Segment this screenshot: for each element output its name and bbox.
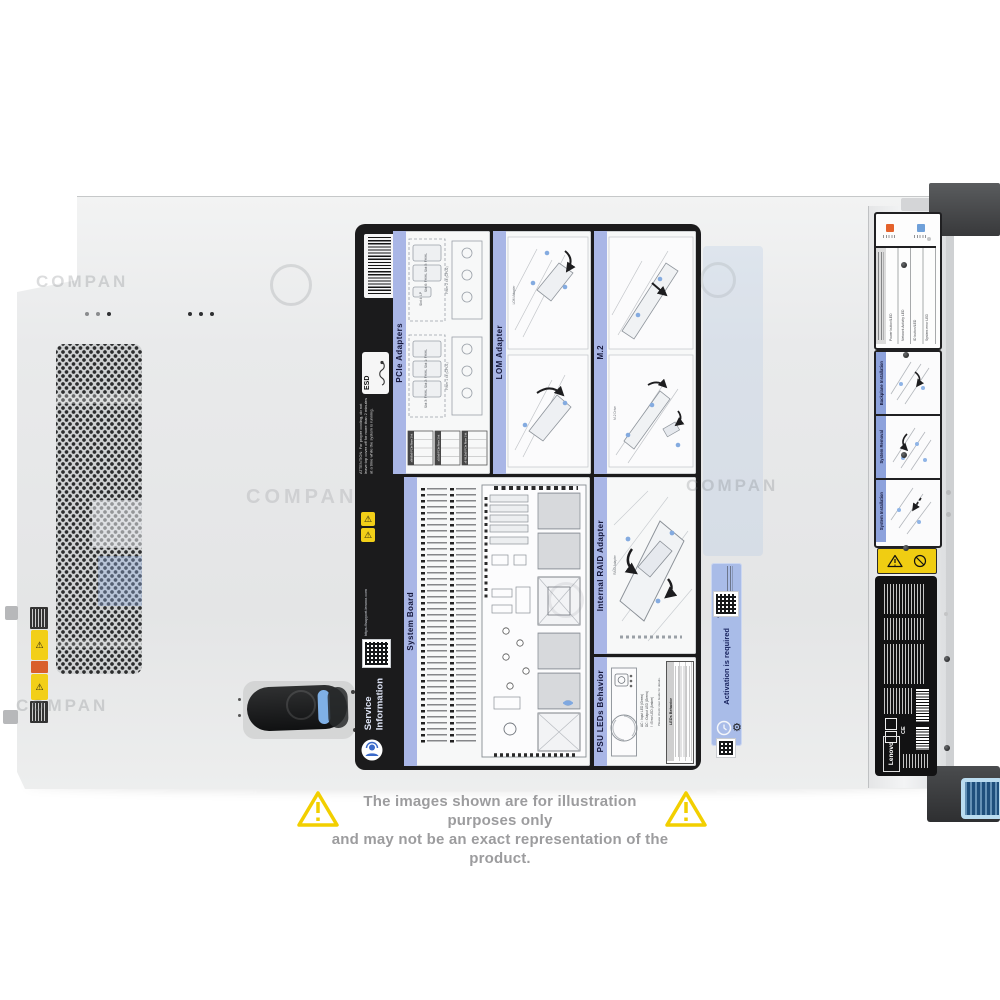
reg-text-block: [884, 618, 924, 640]
screw: [903, 352, 909, 358]
rivet: [210, 312, 214, 316]
vent-highlight: [56, 394, 142, 404]
screw: [944, 745, 950, 751]
section-title-bar: System Removal: [876, 416, 886, 478]
slot-label: Slot 4: LP: [419, 292, 423, 306]
watermark-ring: [286, 690, 316, 720]
wrist-strap-icon: [377, 360, 387, 386]
clock-icon: [716, 720, 732, 736]
no-touch-icon: [913, 554, 927, 568]
lenovo-logo-box: Lenovo: [883, 736, 900, 772]
riser-table-header: x16/x8 PCIe Riser 1 kit: [436, 435, 440, 462]
mini-orange-label: [31, 661, 48, 673]
slot-label: Slot 3: FH/HL: [424, 389, 428, 408]
rail-tab: [901, 198, 931, 211]
handle-cap: [327, 687, 348, 729]
power-button-icon: [886, 224, 894, 232]
reg-text-block: [903, 754, 929, 768]
watermark-ring: [270, 264, 312, 306]
raid-diagram: RAID Adapter: [608, 481, 694, 650]
legend-text-lines: [427, 488, 447, 746]
legend-line: ! : Error LED (Amber): [650, 661, 654, 727]
power-off-warning-icon: ⚠: [361, 512, 375, 526]
slot-label: Slot 2: FH/HL: [424, 369, 428, 388]
section-diagram: [887, 482, 935, 538]
panel-title-m2: M.2: [596, 345, 605, 360]
hot-surface-warning-icon: ⚠: [361, 528, 375, 542]
pin-hole: [946, 512, 951, 517]
pin-hole: [946, 490, 951, 495]
serial-barcode: [364, 234, 395, 298]
riser-table-header: x8/x8/x8 PCIe Riser 1 kit: [409, 434, 413, 463]
panel-title-system-board: System Board: [406, 592, 415, 651]
attention-note-wrap: ATTENTION: For proper cooling, do not le…: [358, 398, 376, 474]
rivet: [96, 312, 100, 316]
legend-markers: [450, 488, 454, 746]
screw: [903, 545, 909, 551]
activation-title-wrap: Activation is required: [711, 618, 742, 714]
disclaimer-line1: The images shown are for illustration pu…: [330, 792, 670, 830]
reg-text-block: [884, 688, 912, 714]
table-text: [675, 666, 692, 757]
section-diagram: [887, 354, 935, 410]
panel-title-raid: Internal RAID Adapter: [596, 520, 605, 611]
panel-title-psu: PSU LEDs Behavior: [596, 670, 605, 752]
panel-title-bar: PCIe Adapters: [393, 231, 406, 474]
tiny-caption: [914, 235, 928, 238]
disclaimer-line2: and may not be an exact representation o…: [330, 830, 670, 868]
m2-callout: M.2 Drive: [613, 406, 617, 420]
mini-spec-label: [30, 607, 48, 629]
edge-tab: [5, 606, 18, 620]
watermark-ring: [700, 262, 736, 298]
lom-diagram: LOM Adapter: [507, 235, 589, 470]
ce-mark: CE: [901, 718, 911, 734]
system-board-diagram: [480, 481, 588, 762]
section-diagram: [887, 418, 935, 474]
table-title: LEDs Behavior: [669, 698, 673, 725]
service-brand-text: Service Information: [363, 678, 386, 730]
attention-note: ATTENTION: For proper cooling, do not le…: [358, 398, 376, 474]
watermark-text: COMPAN: [36, 272, 128, 292]
vent-blue-patch: [98, 556, 142, 606]
support-url-wrap: https://support.lenovo.com: [363, 592, 389, 636]
rail-edge: [946, 214, 954, 780]
reg-text-block: [884, 644, 924, 684]
led-row: System error LED: [925, 251, 934, 341]
legend-markers: [421, 488, 425, 746]
screw: [901, 452, 907, 458]
watermark-text: COMPAN: [16, 696, 108, 716]
legend-line: AC : Input LED (Green): [640, 661, 644, 727]
riser-table-header: x8 ML2/x8 PCIe Riser 1 kit: [463, 432, 467, 463]
panel-title-bar: Internal RAID Adapter: [594, 477, 607, 654]
vent-highlight-2: [56, 640, 142, 648]
rivet: [238, 714, 241, 717]
section-system-removal: System Removal: [876, 416, 940, 480]
panel-lom-adapter: LOM Adapter LOM Adapter: [493, 231, 591, 474]
rivet: [188, 312, 192, 316]
caution-label: [877, 548, 937, 574]
panel-psu-leds: PSU LEDs Behavior AC : Input LED (Green)…: [594, 657, 696, 766]
panel-pcie-adapters: PCIe Adapters Slot 5: FH/HL Slot 6: FH/H…: [393, 231, 490, 474]
reg-barcode: [916, 688, 929, 722]
disclaimer: The images shown are for illustration pu…: [330, 792, 670, 868]
vent-light-patch: [92, 500, 142, 548]
riser1-label: Riser 1 kit (CPU1): [445, 362, 449, 389]
lenovo-logo: Lenovo: [888, 742, 895, 765]
psu-led-legend: AC : Input LED (Green) DC : Output LED (…: [640, 661, 656, 727]
panel-title-pcie: PCIe Adapters: [395, 323, 404, 383]
led-icon-band: [876, 214, 936, 248]
panel-title-bar: PSU LEDs Behavior: [594, 657, 607, 766]
panel-internal-raid: Internal RAID Adapter RAID Adapter: [594, 477, 696, 654]
slot-label: Slot 5: FH/HL: [424, 253, 428, 272]
activation-title: Activation is required: [722, 628, 731, 705]
panel-title-bar: M.2: [594, 231, 607, 474]
esd-text: ESD: [364, 356, 376, 390]
panel-title-lom: LOM Adapter: [495, 325, 504, 379]
watermark-text: COMPAN: [686, 476, 778, 496]
tiny-caption: [883, 235, 897, 238]
m2-diagram: M.2 Drive: [608, 235, 694, 470]
legend-text-lines: [456, 488, 476, 746]
slot-label: Slot 1: FH/HL: [424, 349, 428, 368]
gear-icon: ⚙: [732, 721, 742, 734]
screw: [901, 262, 907, 268]
reg-text-block: [884, 584, 924, 614]
regulatory-label: CE Lenovo: [875, 576, 937, 776]
id-button-icon: [917, 224, 925, 232]
panel-m2: M.2 M.2 Drive: [594, 231, 696, 474]
support-url: https://support.lenovo.com: [363, 592, 389, 636]
panel-title-bar: System Board: [404, 477, 417, 766]
slot-label: Slot 6: FH/HL: [424, 273, 428, 292]
screw: [944, 656, 950, 662]
rivet: [199, 312, 203, 316]
cert-glyph-box: [885, 718, 897, 730]
psu-diagram: [610, 666, 638, 758]
rivet: [107, 312, 111, 316]
pin-hole: [944, 612, 948, 616]
legend-line: DC : Output LED (Green): [645, 661, 649, 727]
mini-warning-label: ⚠: [31, 630, 48, 660]
qr-code-small: [717, 739, 735, 757]
service-headset-icon: [360, 738, 384, 762]
led-row: Power button/LED: [889, 251, 898, 341]
section-title-bar: Backplane Installation: [876, 352, 886, 414]
esd-label: ESD: [362, 352, 389, 394]
panel-system-board: System Board: [404, 477, 590, 766]
warning-triangle-icon: [887, 554, 903, 568]
section-title-bar: System Installation: [876, 480, 886, 542]
rivet: [85, 312, 89, 316]
product-photo: ⚠ ⚠ www.lenovo.com Activation is require…: [0, 0, 1000, 1000]
front-led-label: Power button/LED Network Activity LED ID…: [874, 212, 942, 350]
watermark-text: COMPAN: [246, 486, 357, 509]
led-table-header: [876, 248, 886, 344]
psu-note: Please check User Guide for details.: [657, 662, 663, 726]
pcie-diagram: Slot 5: FH/HL Slot 6: FH/HL Slot 4: LP S…: [406, 235, 488, 470]
table-title-band: LEDs Behavior: [667, 662, 674, 761]
section-backplane-installation: Backplane Installation: [876, 352, 940, 416]
tpm-activation-label: www.lenovo.com Activation is required ⚙: [711, 563, 742, 746]
qr-code: [714, 592, 738, 616]
section-system-installation: System Installation: [876, 480, 940, 542]
service-brand-wrap: Service Information: [357, 670, 391, 738]
instruction-strip: Backplane Installation System Removal Sy…: [874, 350, 942, 548]
pin-hole: [927, 237, 931, 241]
rivet: [238, 698, 241, 701]
watermark-ring: [548, 582, 584, 618]
warning-triangle-icon: [664, 789, 708, 829]
riser2-label: Riser 2 kit (CPU2): [445, 266, 449, 293]
latch-release-button: [961, 778, 1000, 819]
reg-barcode: [916, 726, 929, 750]
lom-callout: LOM Adapter: [512, 285, 516, 305]
led-row: ID button/LED: [913, 251, 922, 341]
raid-callout: RAID Adapter: [613, 554, 617, 574]
support-qr-code: [363, 640, 390, 667]
panel-title-bar: LOM Adapter: [493, 231, 506, 474]
psu-led-table: LEDs Behavior: [666, 661, 694, 764]
